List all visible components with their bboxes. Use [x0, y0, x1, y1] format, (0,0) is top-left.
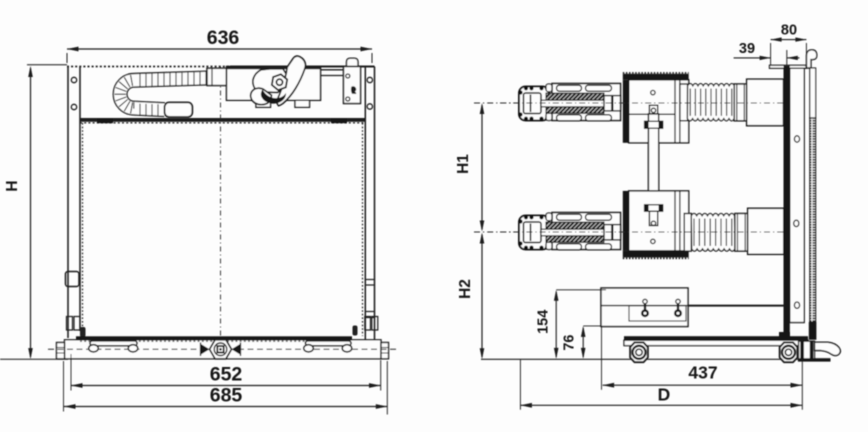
svg-text:D: D	[658, 385, 671, 405]
svg-text:154: 154	[535, 310, 551, 334]
svg-text:652: 652	[210, 364, 243, 386]
svg-text:80: 80	[781, 23, 797, 39]
svg-text:H2: H2	[457, 279, 474, 299]
svg-text:39: 39	[739, 41, 755, 57]
svg-text:685: 685	[210, 385, 243, 407]
svg-text:76: 76	[562, 335, 578, 351]
svg-text:H1: H1	[455, 154, 472, 174]
svg-text:437: 437	[688, 363, 717, 383]
svg-text:H: H	[4, 180, 21, 191]
svg-text:636: 636	[207, 27, 240, 49]
